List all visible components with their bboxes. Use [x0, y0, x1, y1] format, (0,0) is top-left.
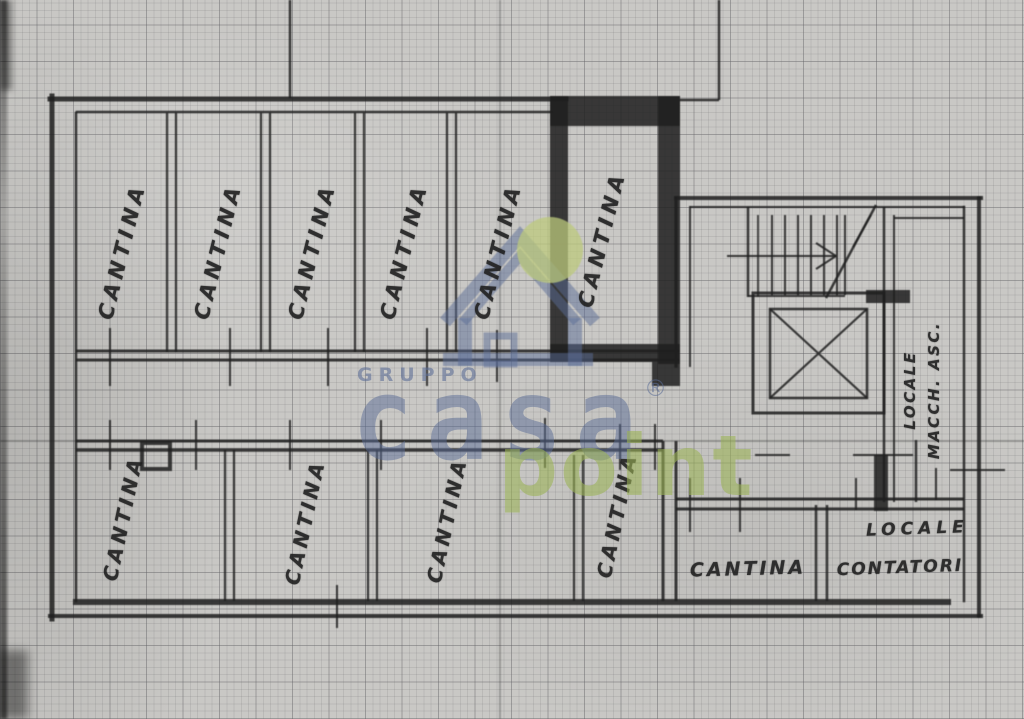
watermark-point-text: point	[498, 424, 755, 508]
watermark-green-circle	[517, 217, 583, 283]
top-reference-lines	[290, 0, 719, 100]
lift-machine-room-label: LOCALE MACCH. ASC.	[898, 290, 946, 490]
door-jamb-fill	[874, 455, 888, 511]
floor-plan-scan: CANTINA CANTINA CANTINA CANTINA CANTINA …	[0, 0, 1024, 719]
lift-machine-room-label-line2: MACCH. ASC.	[922, 290, 946, 490]
staircase	[727, 205, 876, 298]
meter-room-label-line1: LOCALE	[866, 517, 967, 540]
cellar-label-right: CANTINA	[678, 556, 819, 582]
watermark-registered-symbol: ®	[644, 378, 667, 401]
elevator-shaft	[753, 293, 884, 413]
lift-machine-room-label-line1: LOCALE	[898, 290, 922, 490]
